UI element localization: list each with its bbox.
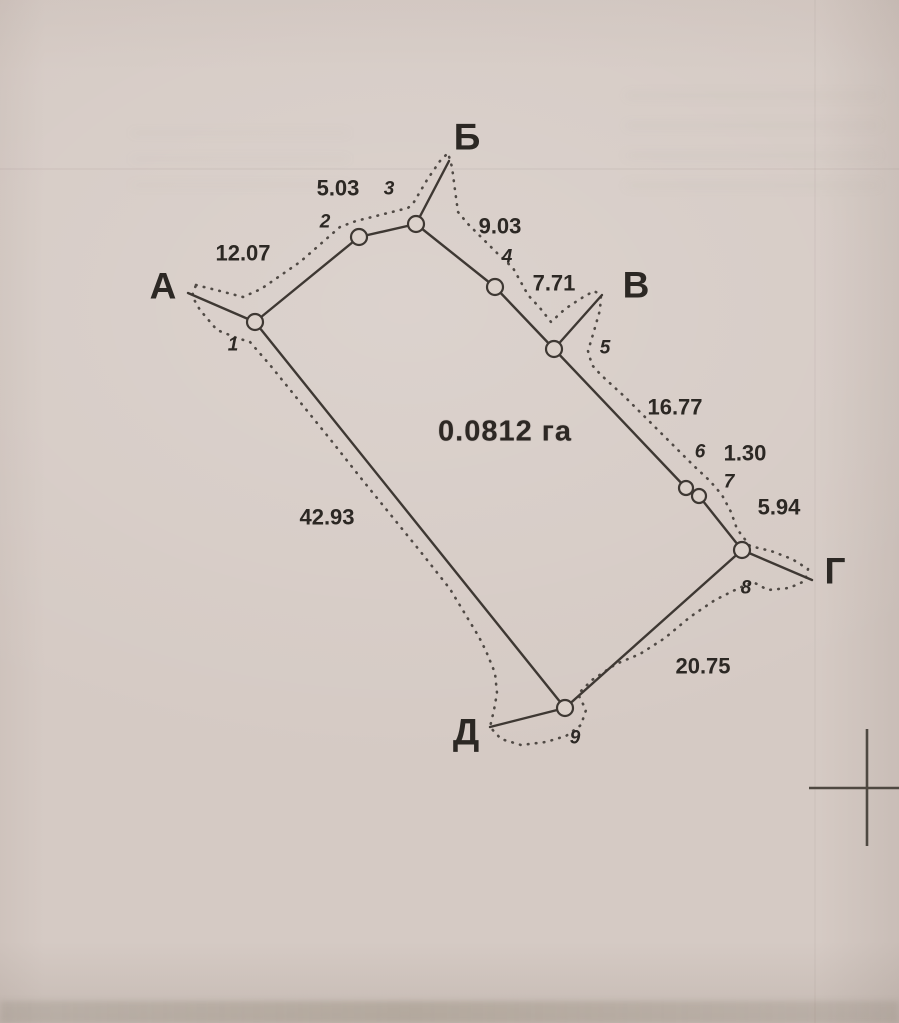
plot-area-label: 0.0812 га — [438, 416, 572, 449]
boundary-side-4-5 — [495, 287, 554, 349]
vertex-circle-1 — [247, 314, 263, 330]
side-length-6-7: 1.30 — [724, 441, 767, 466]
corner-letter-D: Д — [453, 712, 479, 753]
vertex-number-7: 7 — [724, 472, 736, 493]
boundary-spur-b — [416, 161, 449, 224]
side-length-8-9: 20.75 — [675, 654, 730, 679]
corner-letter-B: Б — [454, 117, 481, 158]
boundary-spur-v — [554, 295, 602, 349]
boundary-side-7-8 — [699, 496, 742, 550]
boundary-side-8-9 — [565, 550, 742, 708]
vertex-circle-8 — [734, 542, 750, 558]
vertex-circle-9 — [557, 700, 573, 716]
corner-letter-G: Г — [825, 551, 846, 592]
side-length-3-4: 9.03 — [479, 214, 522, 239]
side-length-2-3: 5.03 — [317, 176, 360, 201]
vertex-number-4: 4 — [501, 247, 513, 268]
land-plot-survey-svg: 12345678912.075.039.037.7116.771.305.942… — [0, 0, 899, 1023]
vertex-number-8: 8 — [741, 578, 752, 599]
vertex-number-2: 2 — [319, 212, 331, 233]
vertex-number-3: 3 — [384, 179, 395, 200]
vertex-circle-4 — [487, 279, 503, 295]
boundary-side-1-2 — [255, 237, 359, 322]
corner-letter-V: В — [623, 265, 650, 306]
vertex-circle-6 — [679, 481, 693, 495]
side-length-9-1: 42.93 — [299, 505, 354, 530]
boundary-spur-d — [490, 708, 565, 727]
corner-letter-A: А — [150, 266, 177, 307]
vertex-circle-7 — [692, 489, 706, 503]
vertex-circle-2 — [351, 229, 367, 245]
side-length-7-8: 5.94 — [758, 495, 802, 520]
side-length-4-5: 7.71 — [533, 271, 576, 296]
scanned-survey-page: 12345678912.075.039.037.7116.771.305.942… — [0, 0, 899, 1023]
vertex-number-6: 6 — [695, 442, 706, 463]
vertex-number-5: 5 — [600, 338, 611, 359]
vertex-number-1: 1 — [228, 335, 239, 356]
vertex-number-9: 9 — [570, 728, 581, 749]
vertex-circle-3 — [408, 216, 424, 232]
side-length-1-2: 12.07 — [215, 241, 270, 266]
side-length-5-6: 16.77 — [647, 395, 702, 420]
vertex-circle-5 — [546, 341, 562, 357]
